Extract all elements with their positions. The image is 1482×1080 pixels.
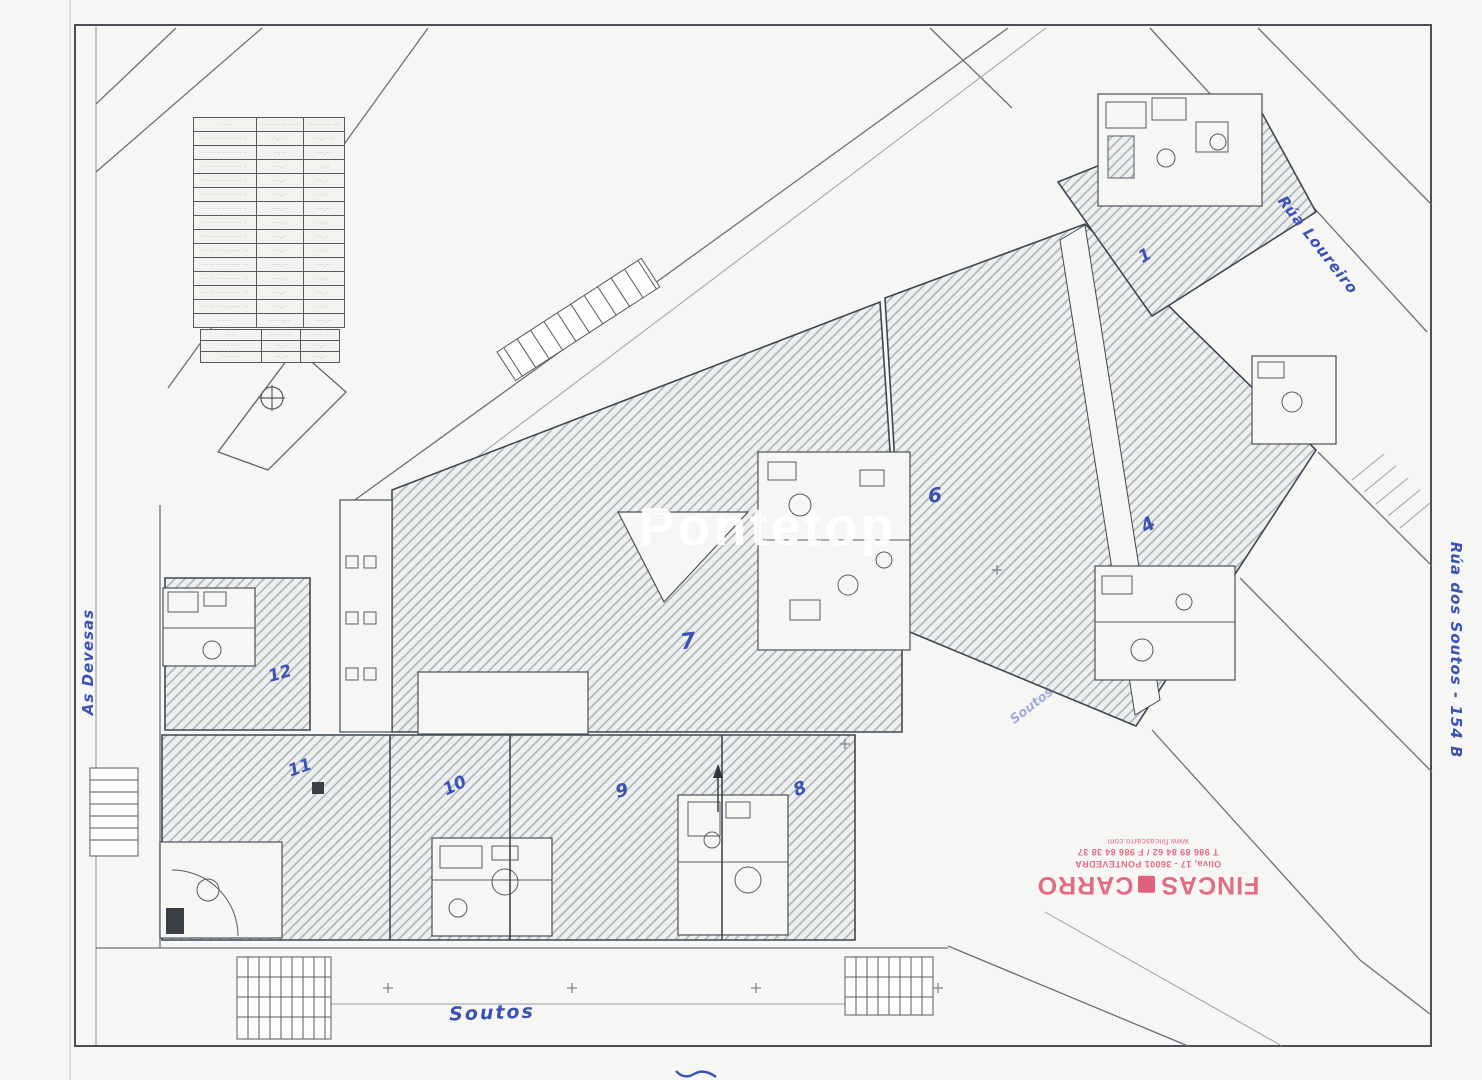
stairs-bottom-right — [845, 957, 933, 1015]
legend-cell: ···,·· — [256, 230, 303, 244]
legend-cell: ···,·· — [262, 341, 301, 352]
agency-stamp: FINCAS CARRO Oliva, 17 - 36001 PONTEVEDR… — [1022, 836, 1274, 900]
agency-stamp-name: FINCAS CARRO — [1022, 869, 1274, 900]
legend-cell: ···,·· — [262, 352, 301, 363]
ink-mark — [676, 1071, 716, 1077]
legend-cell: ····· ·········· · — [194, 216, 257, 230]
legend-cell: ···,·· — [301, 352, 340, 363]
legend-cell: ···,·· — [256, 300, 303, 314]
legend-cell: ····,·· — [303, 314, 344, 328]
legend-cell: ···,·· — [256, 174, 303, 188]
legend-cell: ···,·· — [303, 300, 344, 314]
legend-cell: ···,·· — [303, 244, 344, 258]
legend-cell: ······ ·· — [262, 330, 301, 341]
scanned-floor-plan-page: ················ ·············· ········… — [0, 0, 1482, 1080]
stairs-top — [497, 258, 660, 380]
unit-number-6: 6 — [927, 482, 943, 507]
legend-cell: ····· ·········· · — [194, 146, 257, 160]
legend-cell: ····,·· — [256, 272, 303, 286]
legend-cell: ···,·· — [303, 174, 344, 188]
legend-cell: ······ — [194, 314, 257, 328]
legend-cell: ····· ·········· · — [194, 188, 257, 202]
agency-logo-icon — [1138, 876, 1155, 893]
agency-stamp-address: Oliva, 17 - 36001 PONTEVEDRA — [1022, 857, 1274, 868]
street-label-as-devesas: As Devesas — [79, 609, 97, 715]
legend-cell: ····· ·········· ·· — [194, 272, 257, 286]
legend-cell: ···,·· — [303, 230, 344, 244]
legend-cell: ··,·· — [303, 160, 344, 174]
legend-cell: ····· — [194, 118, 257, 132]
legend-cell: ····· ·········· · — [194, 202, 257, 216]
legend-cell: ····· ·········· ·· — [194, 286, 257, 300]
legend-cell: ····· ·········· ·· — [194, 300, 257, 314]
legend-cell: ···· — [201, 330, 262, 341]
legend-cell: ···,·· — [256, 188, 303, 202]
legend-cell: ········· ··· — [303, 118, 344, 132]
legend-cell: ···,·· — [303, 272, 344, 286]
legend-cell: ····· ·········· · — [194, 132, 257, 146]
watermark: Pontetop — [595, 496, 940, 558]
legend-cell: ····,·· — [256, 216, 303, 230]
legend-cell: ···,·· — [303, 188, 344, 202]
street-label-rua-dos-soutos: Rúa dos Soutos - 154 B — [1447, 542, 1465, 759]
street-label-soutos: Soutos — [449, 1001, 535, 1026]
legend-cell: ···,·· — [303, 202, 344, 216]
legend-cell: ······ ·· — [301, 330, 340, 341]
stairs-left — [90, 768, 138, 856]
legend-cell: ····,·· — [256, 258, 303, 272]
legend-cell: ····· ·········· ·· — [194, 258, 257, 272]
corridor-shaft — [340, 500, 392, 732]
legend-cell: ···,·· — [256, 160, 303, 174]
legend-cell: ··· ···· — [201, 341, 262, 352]
legend-cell: ····,·· — [256, 202, 303, 216]
agency-stamp-phone: T 986 89 84 62 / F 986 84 38 37 — [1022, 846, 1274, 857]
agency-stamp-web: www.fincascarro.com — [1022, 836, 1274, 846]
legend-cell: ····· ·········· · — [194, 230, 257, 244]
legend-cell: ··········· ····· — [256, 118, 303, 132]
legend-cell: ····· ·········· · — [194, 160, 257, 174]
legend-cell: ·····,·· — [256, 314, 303, 328]
legend-cell: ···,·· — [303, 146, 344, 160]
legend-cell: ····· ·········· · — [194, 174, 257, 188]
legend-cell: ···,·· — [303, 258, 344, 272]
unit-number-7: 7 — [679, 629, 698, 656]
legend-cell: ····· ·········· ·· — [194, 244, 257, 258]
legend-cell: ···,·· — [256, 286, 303, 300]
legend-cell: ···,·· — [301, 341, 340, 352]
legend-cell: ··,·· — [256, 146, 303, 160]
legend-cell: ···,·· — [303, 216, 344, 230]
survey-symbol — [259, 385, 285, 411]
legend-cell: ··· ···· — [201, 352, 262, 363]
legend-cell: ···,·· — [303, 286, 344, 300]
legend-cell: ···,·· ·· — [303, 132, 344, 146]
legend-cell: ···,·· — [256, 244, 303, 258]
trapezoid-parcel — [218, 348, 346, 470]
legend-cell: ···,·· ·· — [256, 132, 303, 146]
stairs-bottom-left — [237, 957, 331, 1039]
